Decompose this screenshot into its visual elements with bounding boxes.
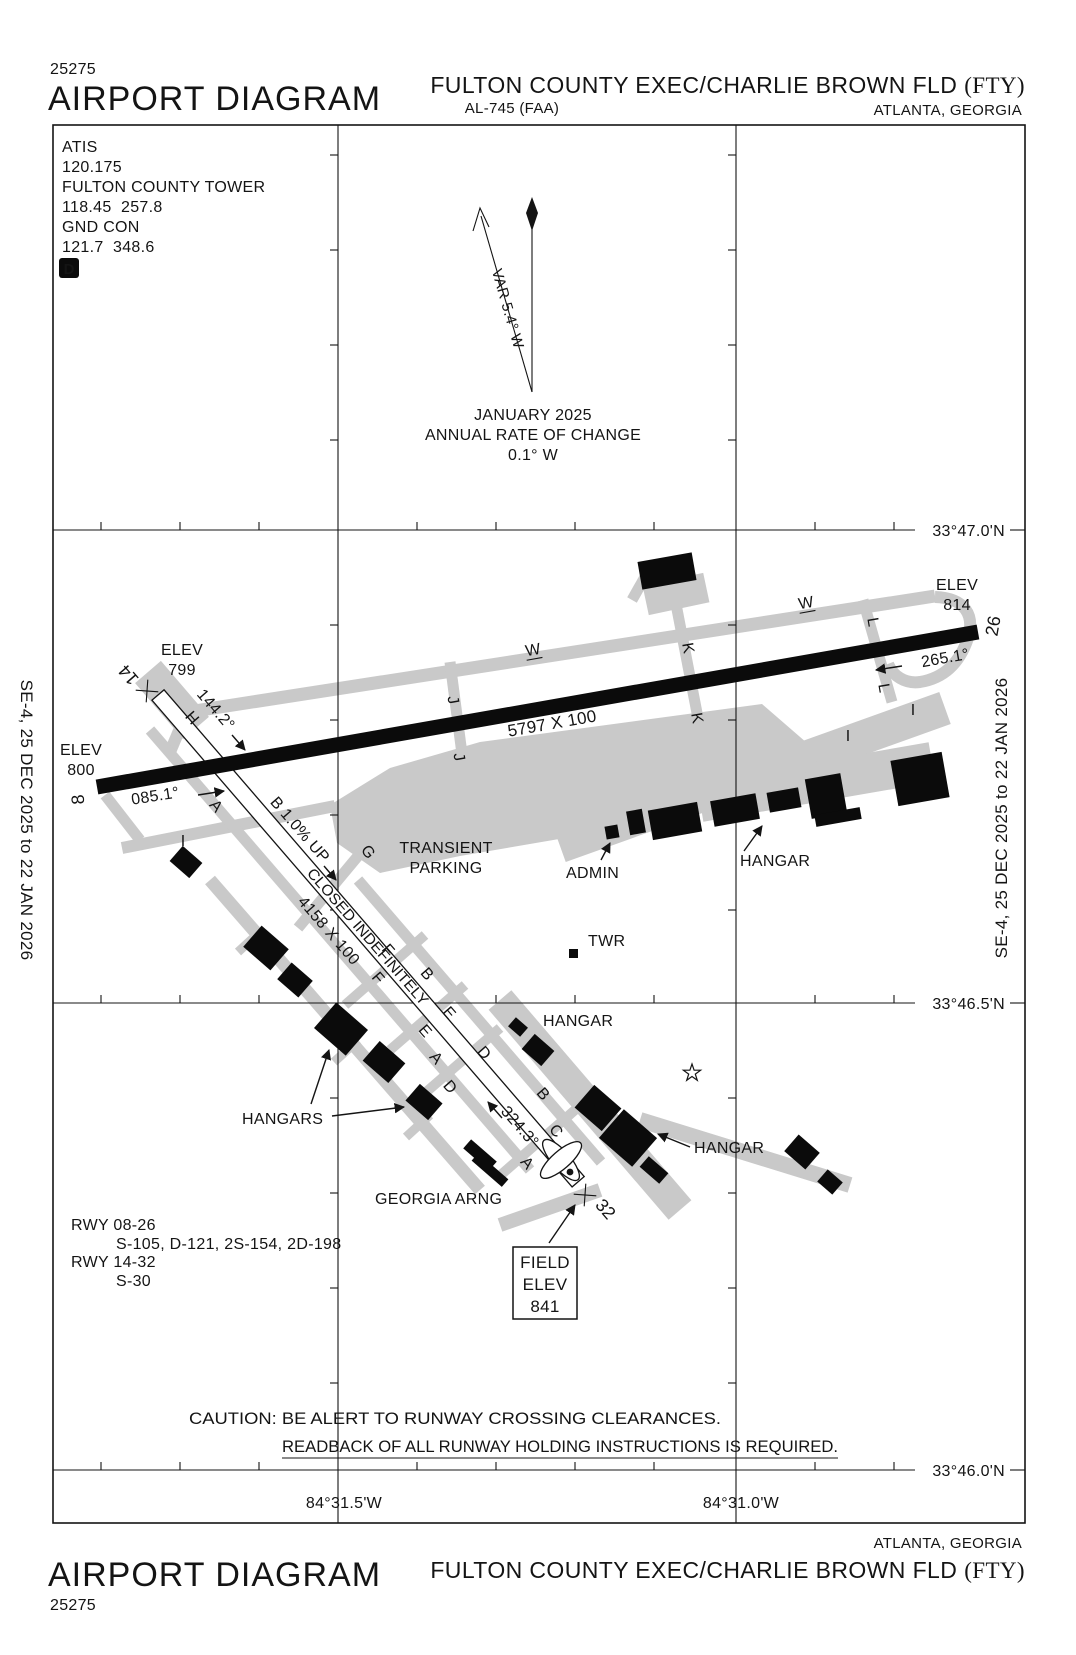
edge-date-right: SE-4, 25 DEC 2025 to 22 JAN 2026 (992, 678, 1011, 959)
taxiway-labels: WWJJKKLLIIIHAGFFBEEADDBCA (181, 594, 915, 1174)
compass-date: JANUARY 2025 (474, 407, 592, 424)
runway-number-8: 8 (68, 794, 89, 806)
airport-id: (FTY) (964, 73, 1025, 98)
airport-title-top: FULTON COUNTY EXEC/CHARLIE BROWN FLD(FTY… (430, 72, 1025, 98)
elev-label-14: ELEV (161, 642, 203, 659)
elev-value-west: 800 (67, 762, 95, 779)
rwy1-values: S-105, D-121, 2S-154, 2D-198 (116, 1236, 341, 1253)
taxiway-label-k: K (678, 641, 697, 655)
rwy2-label: RWY 14-32 (71, 1254, 156, 1271)
building (604, 824, 619, 839)
transient-parking-label-2: PARKING (410, 860, 483, 877)
true-north-arrow-icon (526, 197, 538, 231)
building (170, 846, 203, 878)
taxiway-label-w: W (524, 641, 543, 661)
twr-label: TWR (588, 933, 625, 950)
rwy2-values: S-30 (116, 1273, 151, 1290)
field-elev-value: 841 (530, 1297, 559, 1316)
procedure-code: AL-745 (FAA) (465, 100, 559, 117)
elev-value-east: 814 (943, 597, 971, 614)
caution-note: CAUTION: BE ALERT TO RUNWAY CROSSING CLE… (189, 1409, 838, 1458)
ground-frequencies: 121.7 348.6 (62, 239, 155, 256)
tower-building (569, 949, 578, 958)
hangars-west-label: HANGARS (242, 1111, 323, 1128)
airport-title-bottom: FULTON COUNTY EXEC/CHARLIE BROWN FLD(FTY… (430, 1557, 1025, 1583)
atis-label: ATIS (62, 139, 98, 156)
svg-text:I: I (911, 702, 915, 719)
runway-end-dot (567, 1169, 574, 1176)
hangar-mid-label: HANGAR (543, 1013, 613, 1030)
runway-heading-085: 085.1° (130, 784, 180, 808)
beacon-star-icon (683, 1064, 700, 1080)
field-elev-line2: ELEV (523, 1275, 568, 1294)
edge-date-left: SE-4, 25 DEC 2025 to 22 JAN 2026 (17, 680, 36, 961)
taxiway-label-l: L (863, 616, 881, 628)
rate-of-change-label: ANNUAL RATE OF CHANGE (425, 427, 641, 444)
svg-text:K: K (678, 641, 697, 655)
rate-of-change-value: 0.1° W (508, 447, 559, 464)
building (890, 752, 949, 806)
hangar-north-label: HANGAR (740, 853, 810, 870)
airport-diagram-page: 25275 AIRPORT DIAGRAM FULTON COUNTY EXEC… (0, 0, 1076, 1650)
elev-label-west: ELEV (60, 742, 102, 759)
runway-number-32: 32 (591, 1195, 619, 1223)
admin-label: ADMIN (566, 865, 619, 882)
svg-text:I: I (846, 728, 850, 745)
airport-name: FULTON COUNTY EXEC/CHARLIE BROWN FLD (430, 1557, 957, 1583)
caution-line2: READBACK OF ALL RUNWAY HOLDING INSTRUCTI… (282, 1437, 838, 1456)
latitude-label-3: 33°46.0'N (932, 1463, 1005, 1480)
ground-control-label: GND CON (62, 219, 140, 236)
doc-title-bottom: AIRPORT DIAGRAM (48, 1556, 381, 1594)
field-elev-line1: FIELD (520, 1253, 570, 1272)
elev-label-east: ELEV (936, 577, 978, 594)
svg-text:L: L (863, 616, 881, 628)
magnetic-north-arrow-icon (473, 208, 489, 231)
taxiway-label-i: I (911, 702, 915, 719)
doc-title-top: AIRPORT DIAGRAM (48, 80, 381, 118)
elev-value-14: 799 (168, 662, 196, 679)
tower-name: FULTON COUNTY TOWER (62, 179, 265, 196)
latitude-label-1: 33°47.0'N (932, 523, 1005, 540)
comms-block: ATIS 120.175 FULTON COUNTY TOWER 118.45 … (59, 139, 265, 278)
svg-text:W: W (524, 641, 543, 661)
magnetic-variation: VAR 5.4° W (488, 267, 527, 351)
chart-number-top: 25275 (50, 61, 96, 78)
tower-frequencies: 118.45 257.8 (62, 199, 163, 216)
taxiway-label-w: W (797, 594, 816, 614)
longitude-label-1: 84°31.5'W (306, 1495, 383, 1512)
taxiway-label-i: I (181, 833, 185, 850)
svg-text:W: W (797, 594, 816, 614)
svg-text:I: I (181, 833, 185, 850)
atis-frequency: 120.175 (62, 159, 122, 176)
city-top: ATLANTA, GEORGIA (874, 102, 1022, 119)
runway-data-block: RWY 08-26 S-105, D-121, 2S-154, 2D-198 R… (71, 1217, 341, 1290)
runway-number-26: 26 (982, 614, 1005, 637)
chart-number-bottom: 25275 (50, 1597, 96, 1614)
datis-badge: D (64, 261, 75, 278)
city-bottom: ATLANTA, GEORGIA (874, 1535, 1022, 1552)
compass-rose: VAR 5.4° W JANUARY 2025 ANNUAL RATE OF C… (425, 197, 641, 464)
longitude-label-2: 84°31.0'W (703, 1495, 780, 1512)
rwy1-label: RWY 08-26 (71, 1217, 156, 1234)
latitude-label-2: 33°46.5'N (932, 996, 1005, 1013)
airport-name: FULTON COUNTY EXEC/CHARLIE BROWN FLD (430, 72, 957, 98)
transient-parking-label-1: TRANSIENT (399, 840, 492, 857)
caution-line1: CAUTION: BE ALERT TO RUNWAY CROSSING CLE… (189, 1409, 721, 1428)
taxiway-label-i: I (846, 728, 850, 745)
hangar-south-label: HANGAR (694, 1140, 764, 1157)
georgia-arng-label: GEORGIA ARNG (375, 1191, 502, 1208)
airport-id: (FTY) (964, 1558, 1025, 1583)
